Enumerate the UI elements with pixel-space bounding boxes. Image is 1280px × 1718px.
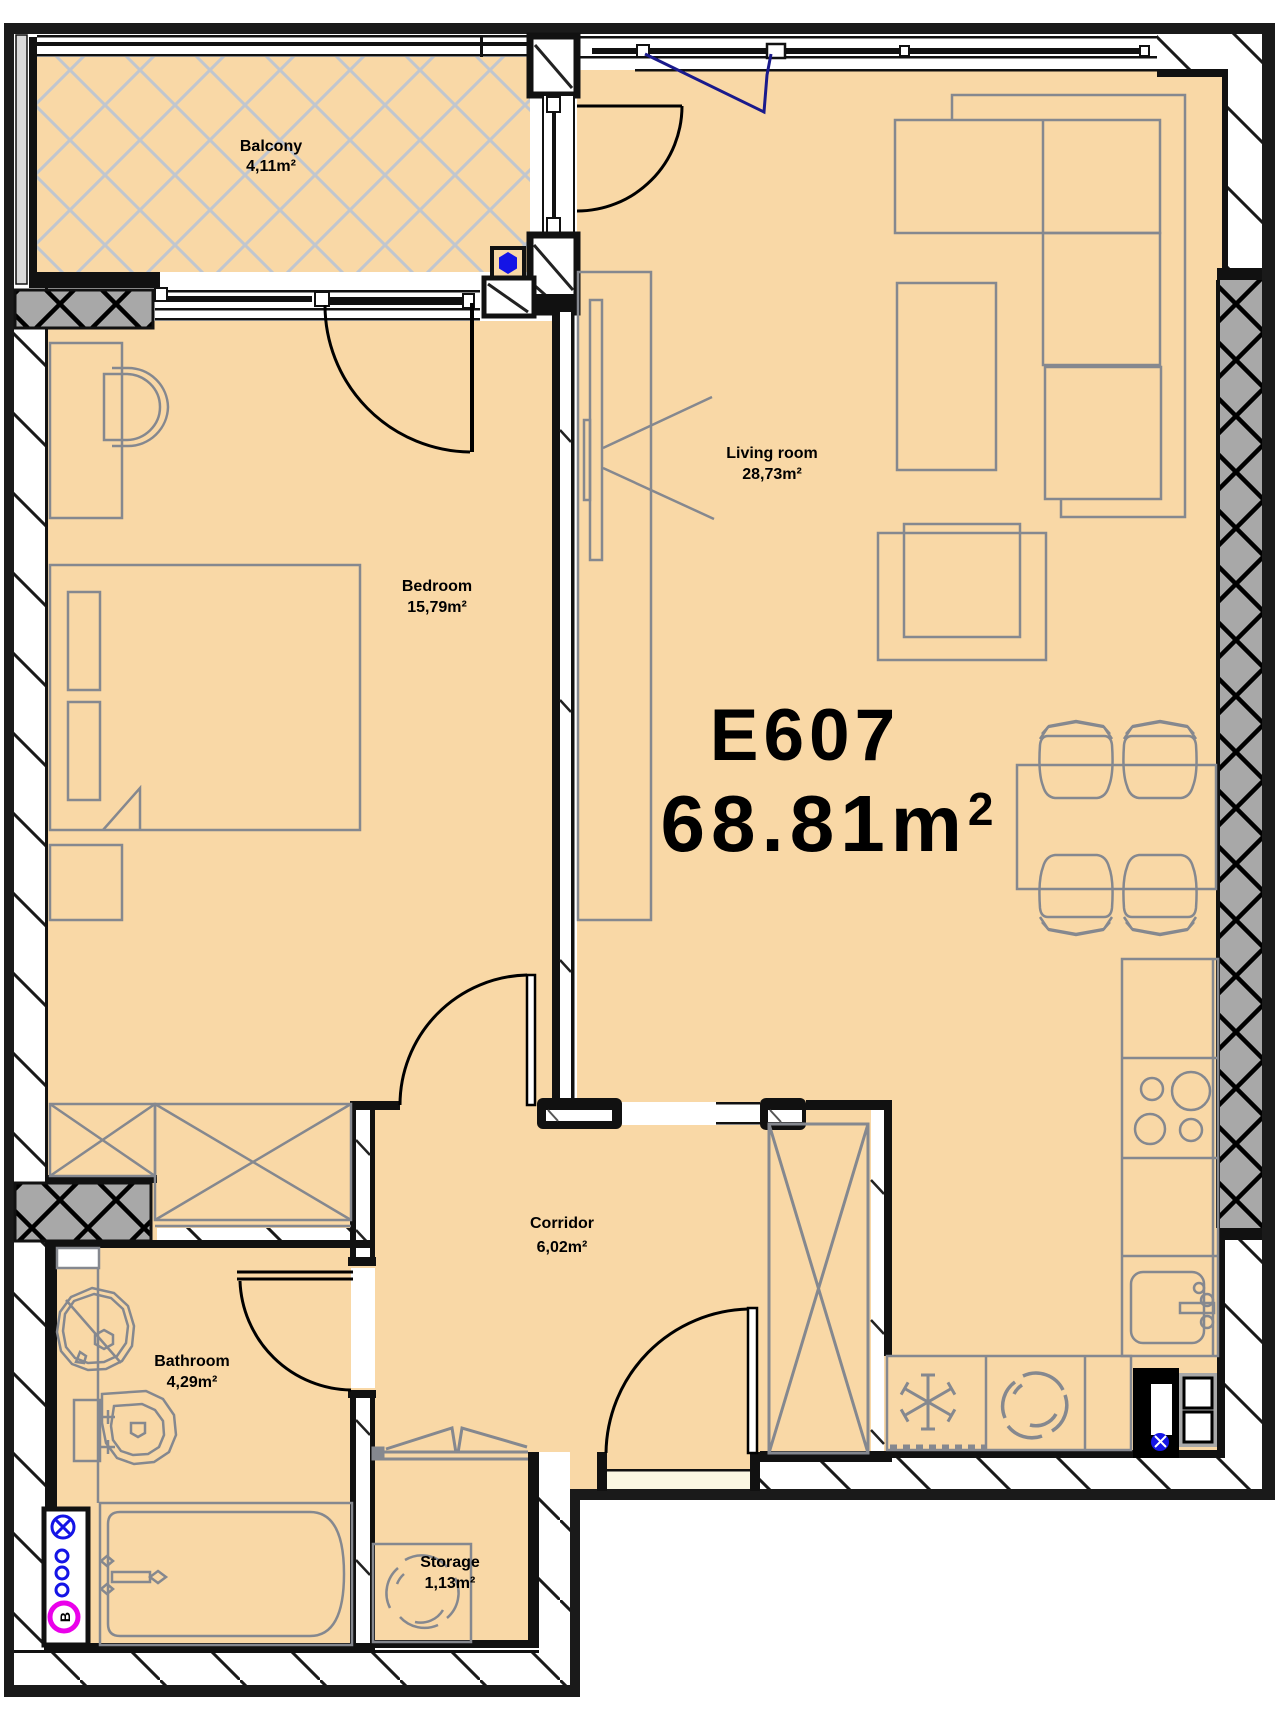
svg-text:B: B bbox=[57, 1612, 73, 1622]
svg-text:Bedroom: Bedroom bbox=[402, 578, 472, 595]
svg-text:15,79m²: 15,79m² bbox=[407, 599, 467, 616]
svg-text:Balcony: Balcony bbox=[240, 138, 302, 155]
svg-text:Living room: Living room bbox=[726, 445, 818, 462]
svg-text:Corridor: Corridor bbox=[530, 1215, 594, 1232]
svg-text:E607: E607 bbox=[710, 695, 901, 776]
svg-text:6,02m²: 6,02m² bbox=[537, 1239, 588, 1256]
svg-text:Bathroom: Bathroom bbox=[154, 1353, 230, 1370]
svg-text:28,73m²: 28,73m² bbox=[742, 466, 802, 483]
svg-text:Storage: Storage bbox=[420, 1554, 480, 1571]
svg-text:1,13m²: 1,13m² bbox=[425, 1575, 476, 1592]
svg-text:4,11m²: 4,11m² bbox=[246, 158, 296, 175]
svg-text:68.81m2: 68.81m2 bbox=[661, 779, 1000, 868]
svg-text:4,29m²: 4,29m² bbox=[167, 1374, 218, 1391]
